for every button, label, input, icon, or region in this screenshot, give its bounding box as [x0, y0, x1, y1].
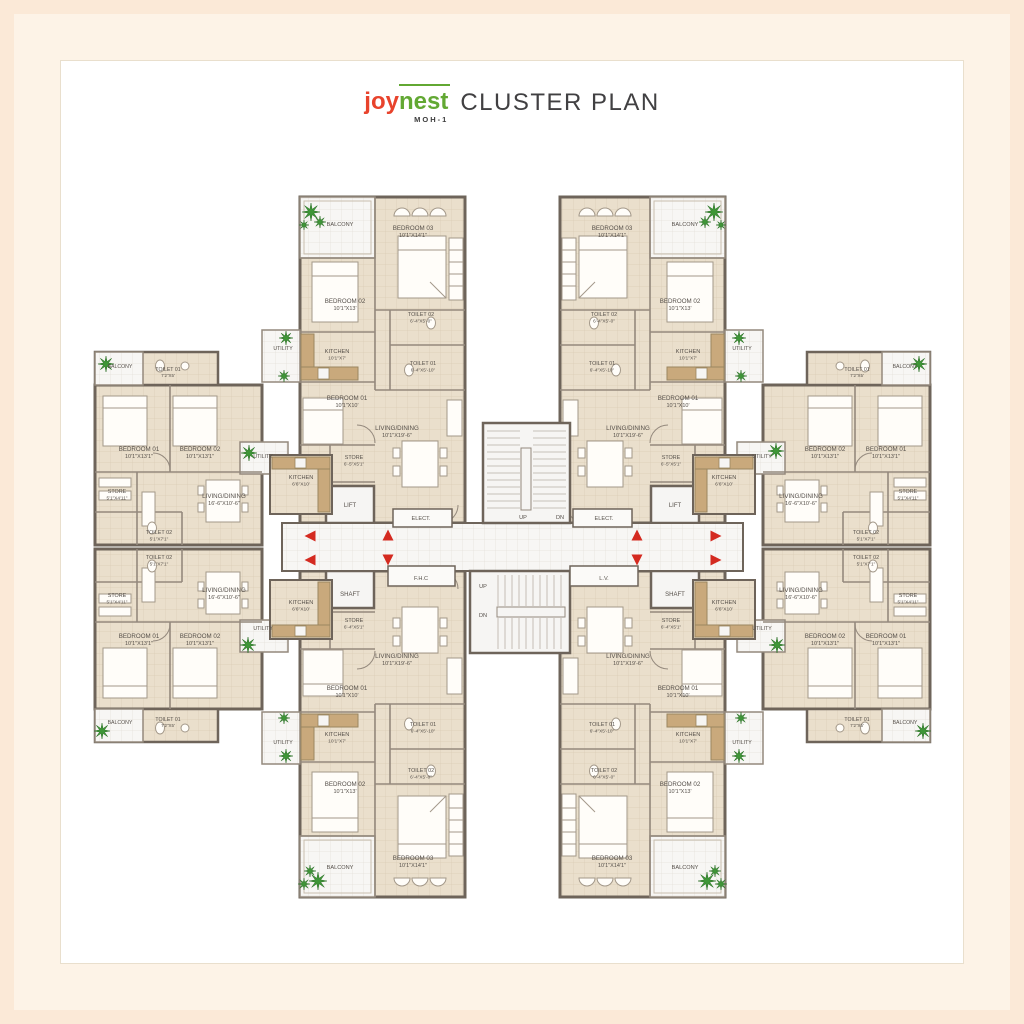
tree-icon — [302, 203, 320, 221]
room-label: BALCONY — [327, 222, 354, 228]
room-label: TOILET 025'1"X7'1" — [853, 555, 879, 566]
room-label: TOILET 025'1"X7'1" — [853, 530, 879, 541]
tree-icon — [705, 203, 723, 221]
room-label: UTILITY — [253, 626, 273, 632]
staircase-upper — [483, 423, 570, 523]
tree-icon — [735, 370, 747, 382]
tree-icon — [732, 331, 746, 345]
room-label: STORE5'1"X4'11" — [898, 489, 919, 500]
room-label: STORE5'1"X4'11" — [898, 593, 919, 604]
room-label: STORE6'-5"X5'1" — [344, 455, 365, 466]
tree-icon — [732, 749, 746, 763]
tree-icon — [314, 216, 326, 228]
brand-joy: joy — [364, 88, 399, 115]
tree-icon — [299, 220, 309, 230]
room-label: ELECT. — [412, 516, 431, 522]
room-label: UTILITY — [752, 626, 772, 632]
brand-subtitle: MOH-1 — [364, 116, 448, 124]
room-label: SHAFT — [340, 592, 360, 598]
room-label: STORE6'-4"X5'1" — [661, 618, 682, 629]
room-label: TOILET 026'-4"X5'-0" — [408, 312, 434, 323]
tree-icon — [279, 331, 293, 345]
tree-icon — [698, 872, 716, 890]
brand-overline — [399, 84, 450, 86]
room-label: UTILITY — [732, 740, 752, 746]
room-label: STORE5'1"X4'11" — [107, 489, 128, 500]
tree-icon — [699, 216, 711, 228]
tree-icon — [709, 865, 721, 877]
tree-icon — [715, 878, 727, 890]
room-label: STORE6'-5"X5'1" — [661, 455, 682, 466]
page-heading: CLUSTER PLAN — [460, 88, 659, 117]
tree-icon — [298, 878, 310, 890]
tree-icon — [279, 749, 293, 763]
room-label: BALCONY — [327, 865, 354, 871]
room-label: DN — [556, 515, 564, 521]
room-label: TOILET 026'-4"X5'-0" — [591, 312, 617, 323]
room-label: UTILITY — [752, 454, 772, 460]
room-label: STORE5'1"X4'11" — [107, 593, 128, 604]
tree-icon — [304, 865, 316, 877]
room-label: BALCONY — [108, 720, 133, 726]
room-label: TOILET 016'-4"X5'-10" — [589, 722, 615, 733]
room-label: TOILET 016'-4"X5'-10" — [410, 361, 436, 372]
room-label: UTILITY — [273, 740, 293, 746]
room-label: L.V. — [599, 576, 609, 582]
room-label: TOILET 016'-4"X5'-10" — [410, 722, 436, 733]
room-label: BALCONY — [108, 364, 133, 370]
room-label: UTILITY — [253, 454, 273, 460]
room-label: LIFT — [344, 503, 357, 509]
room-label: UP — [479, 584, 487, 590]
tree-icon — [278, 370, 290, 382]
room-label: TOILET 025'1"X7'1" — [146, 530, 172, 541]
room-label: TOILET 026'-4"X5'-0" — [591, 768, 617, 779]
room-label: UP — [519, 515, 527, 521]
room-label: BALCONY — [672, 865, 699, 871]
room-label: TOILET 026'-4"X5'-0" — [408, 768, 434, 779]
room-label: TOILET 016'-4"X5'-10" — [589, 361, 615, 372]
room-label: DN — [479, 613, 487, 619]
room-label: F.H.C — [414, 576, 428, 582]
joynest-logo: joynestMOH-1 — [364, 88, 448, 124]
tree-icon — [240, 637, 256, 653]
tree-icon — [278, 712, 290, 724]
room-label: TOILET 025'1"X7'1" — [146, 555, 172, 566]
room-label: STORE6'-4"X5'1" — [344, 618, 365, 629]
floor-plan-svg: BALCONYBEDROOM 0310'1"X14'1"BEDROOM 0210… — [0, 0, 1024, 1024]
room-label: UTILITY — [732, 346, 752, 352]
corridor — [282, 523, 743, 571]
room-label: LIFT — [669, 503, 682, 509]
room-label: UTILITY — [273, 346, 293, 352]
room-label: SHAFT — [665, 592, 685, 598]
room-label: BALCONY — [672, 222, 699, 228]
room-label: BALCONY — [893, 364, 918, 370]
page-title: joynestMOH-1 CLUSTER PLAN — [0, 88, 1024, 124]
room-label: ELECT. — [595, 516, 614, 522]
tree-icon — [716, 220, 726, 230]
tree-icon — [769, 637, 785, 653]
room-label: BALCONY — [893, 720, 918, 726]
tree-icon — [309, 872, 327, 890]
tree-icon — [735, 712, 747, 724]
